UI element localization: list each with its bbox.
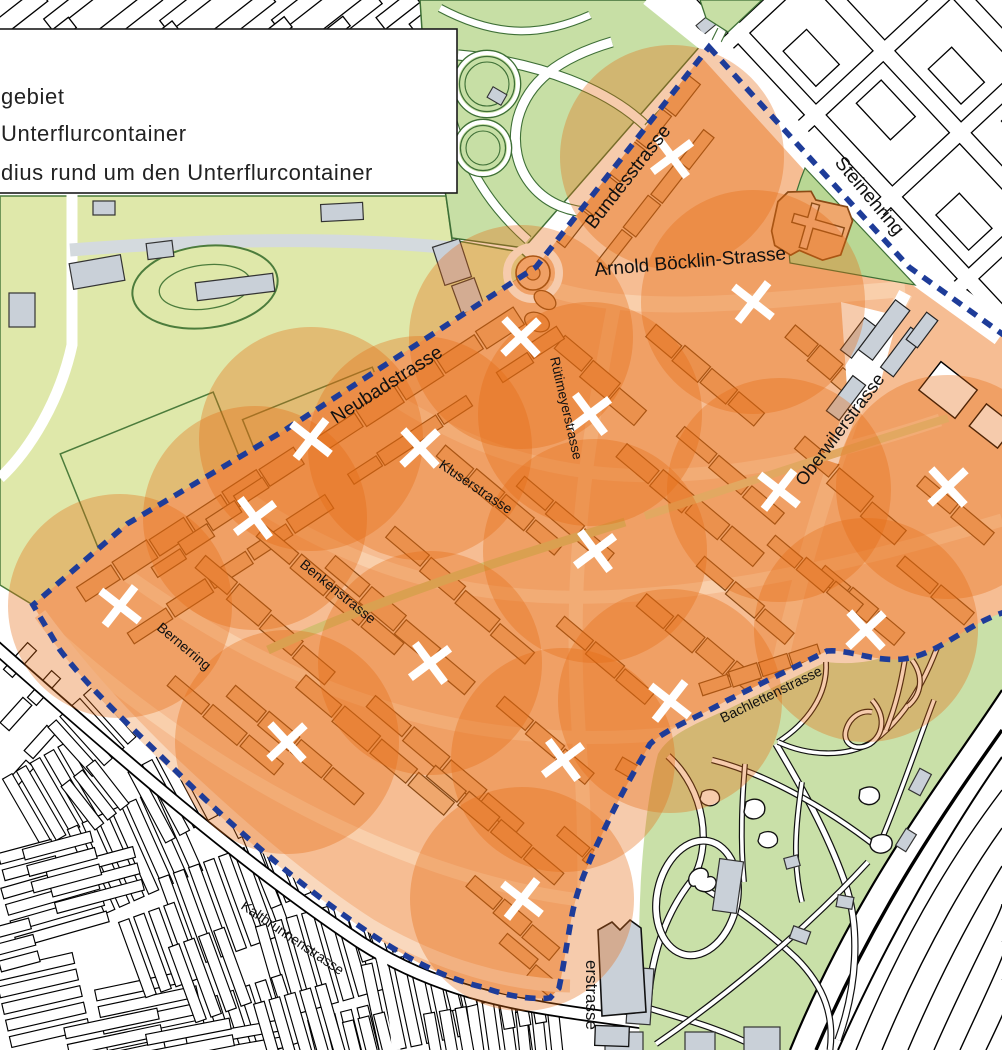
svg-text:erstrasse: erstrasse bbox=[582, 960, 601, 1030]
svg-text:dius rund um den Unterflurcont: dius rund um den Unterflurcontainer bbox=[1, 160, 373, 185]
svg-text:gebiet: gebiet bbox=[1, 84, 65, 109]
svg-text:Unterflurcontainer: Unterflurcontainer bbox=[1, 121, 187, 146]
